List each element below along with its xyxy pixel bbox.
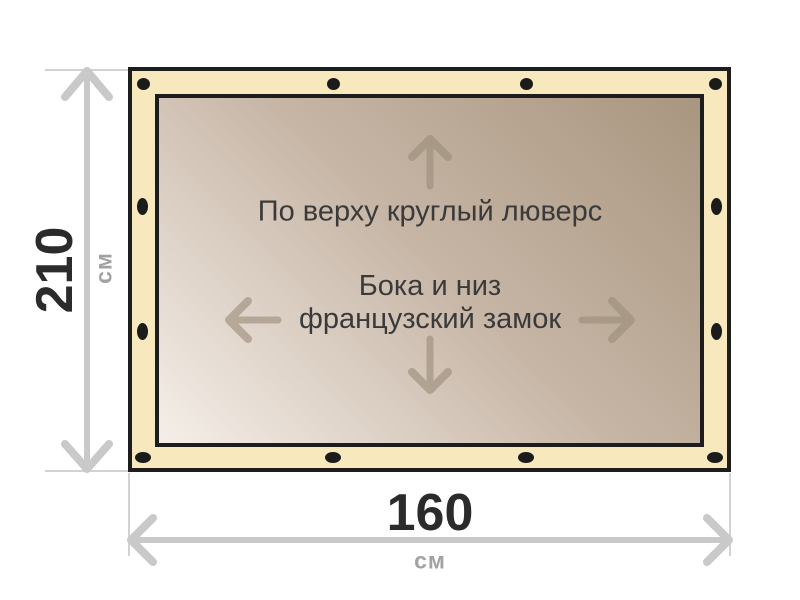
grommet-icon bbox=[137, 78, 150, 90]
grommet-icon bbox=[711, 323, 722, 340]
grommet-icon bbox=[707, 452, 723, 463]
grommet-icon bbox=[137, 198, 148, 215]
grommet-icon bbox=[135, 452, 151, 463]
height-value-label: 210 bbox=[25, 227, 85, 314]
grommet-icon bbox=[518, 452, 534, 463]
sides-annotation-line1: Бока и низ bbox=[299, 270, 561, 303]
grommet-icon bbox=[520, 78, 533, 90]
top-edge-annotation: По верху круглый люверс bbox=[258, 196, 603, 229]
sides-annotation: Бока и низ французский замок bbox=[299, 270, 561, 336]
tarp-dimension-diagram: 210 см 160 см По верху круглый люверс Бо… bbox=[0, 0, 800, 600]
width-unit-label: см bbox=[414, 548, 446, 575]
height-unit-label: см bbox=[91, 252, 118, 284]
grommet-icon bbox=[709, 78, 722, 90]
grommet-icon bbox=[711, 198, 722, 215]
sides-annotation-line2: французский замок bbox=[299, 303, 561, 336]
grommet-icon bbox=[137, 323, 148, 340]
grommet-icon bbox=[325, 452, 341, 463]
width-value-label: 160 bbox=[387, 483, 474, 543]
grommet-icon bbox=[327, 78, 340, 90]
